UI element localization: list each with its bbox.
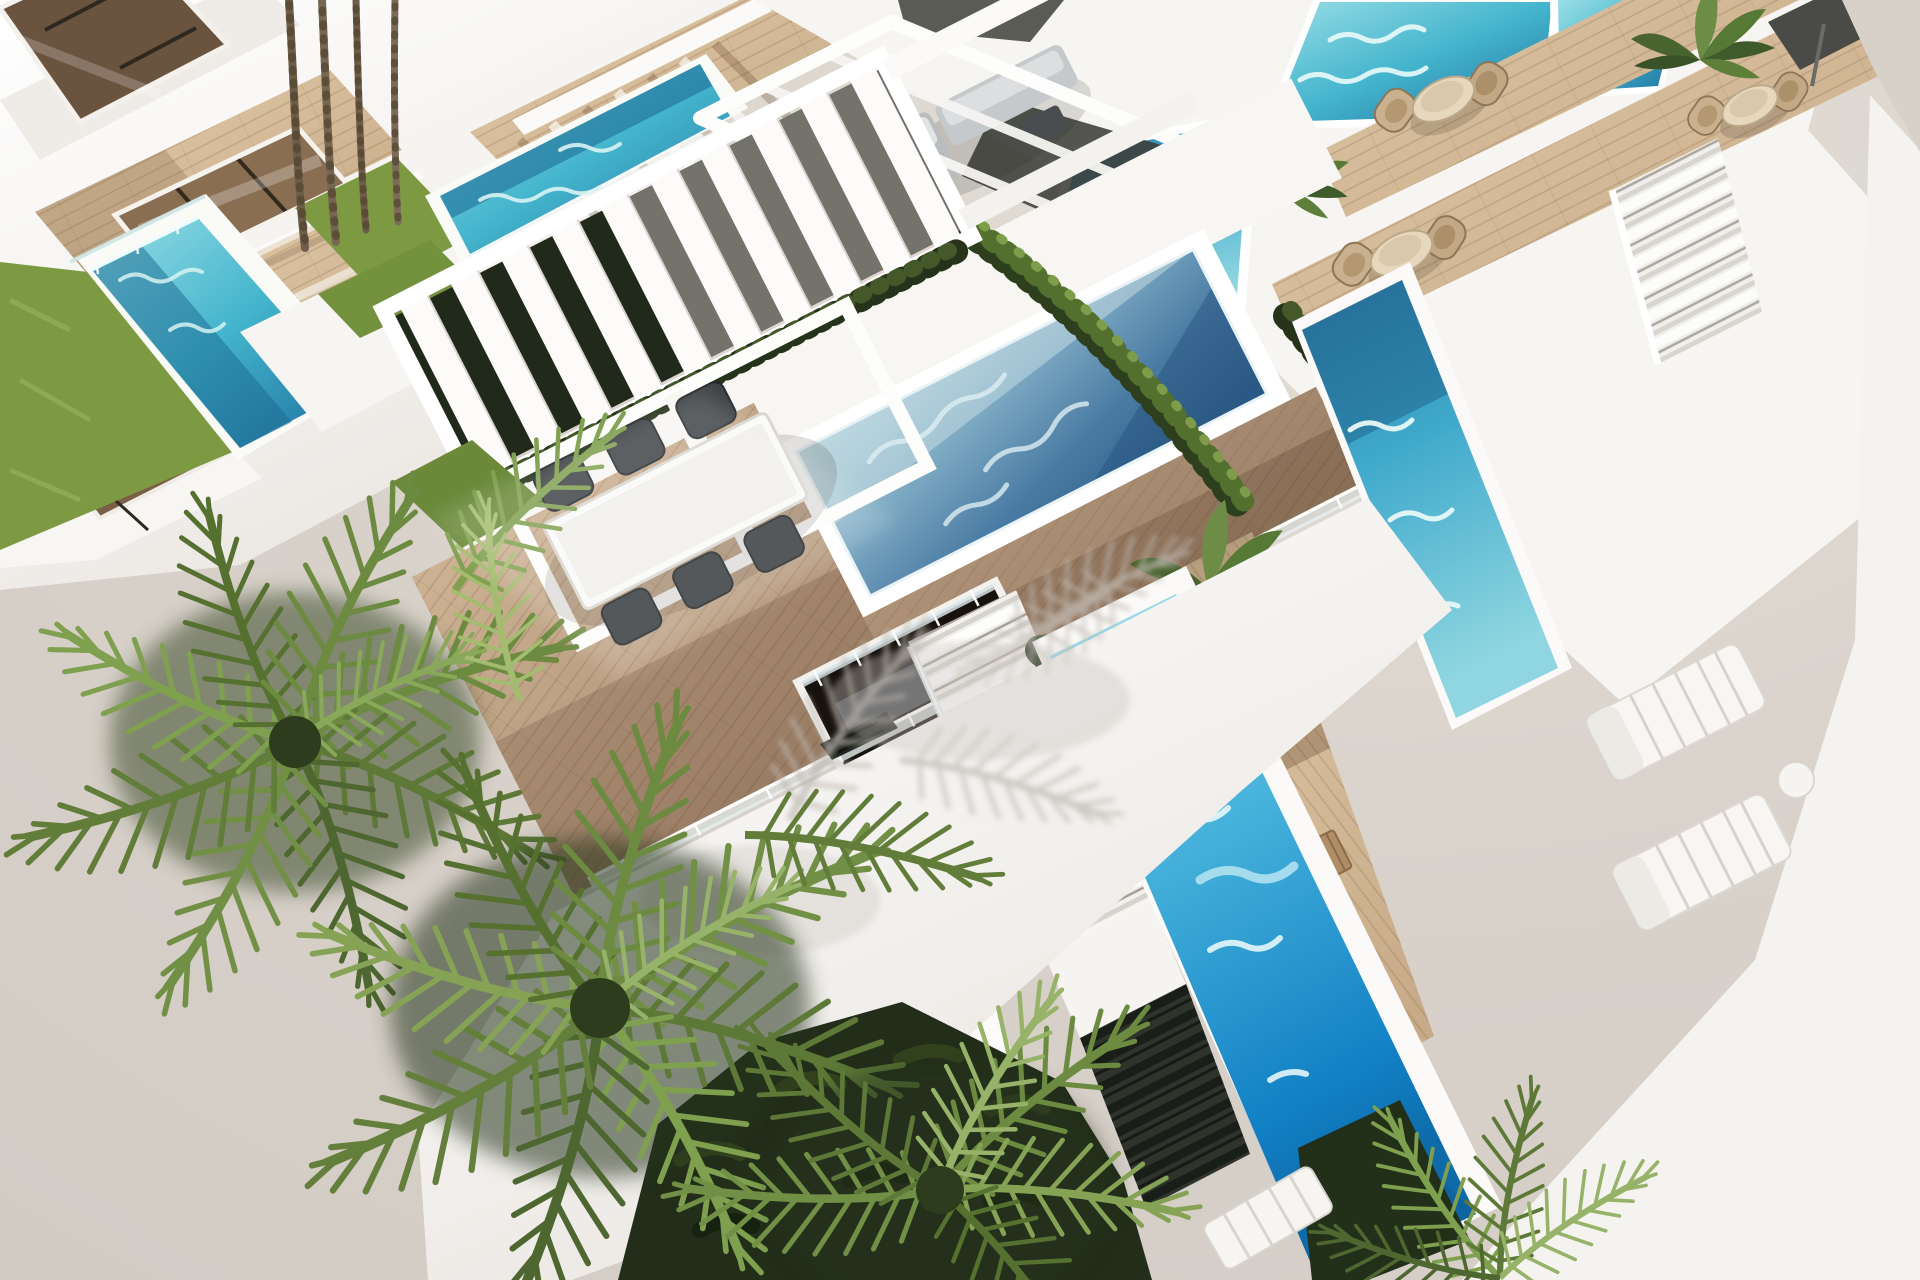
render-viewport: Aerial 3D render of modern white villas …	[0, 0, 1920, 1280]
villa-render: Aerial 3D render of modern white villas …	[0, 0, 1920, 1280]
lounger-side-table	[1778, 762, 1814, 798]
